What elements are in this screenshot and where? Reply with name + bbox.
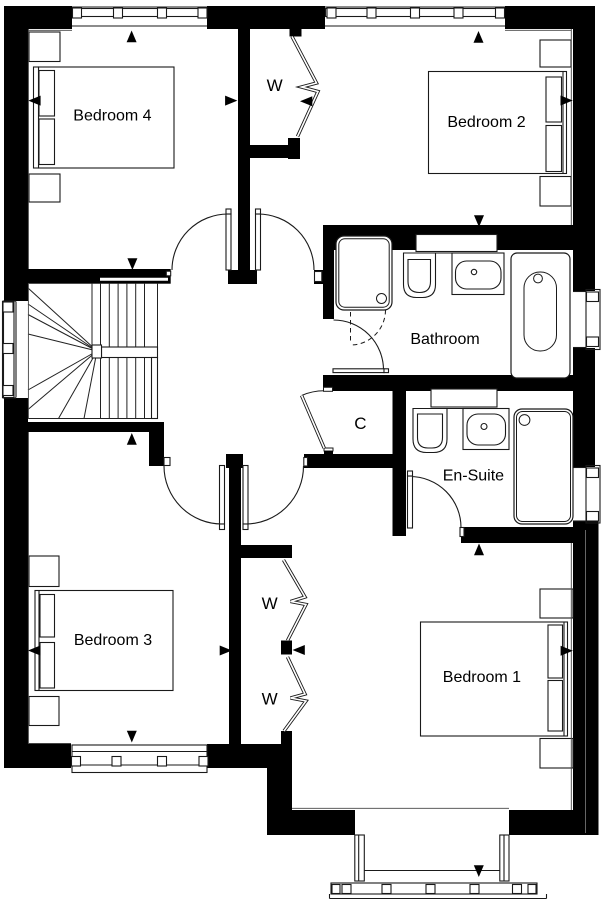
svg-text:Bedroom 1: Bedroom 1 [443, 669, 521, 686]
svg-text:W: W [267, 76, 283, 95]
svg-text:W: W [262, 689, 278, 708]
svg-text:Bedroom 3: Bedroom 3 [74, 632, 152, 649]
svg-text:Bathroom: Bathroom [410, 331, 479, 348]
svg-text:Bedroom 4: Bedroom 4 [73, 107, 151, 124]
svg-text:W: W [262, 594, 278, 613]
svg-text:C: C [354, 414, 366, 433]
svg-text:Bedroom 2: Bedroom 2 [447, 114, 525, 131]
svg-text:En-Suite: En-Suite [443, 468, 504, 485]
